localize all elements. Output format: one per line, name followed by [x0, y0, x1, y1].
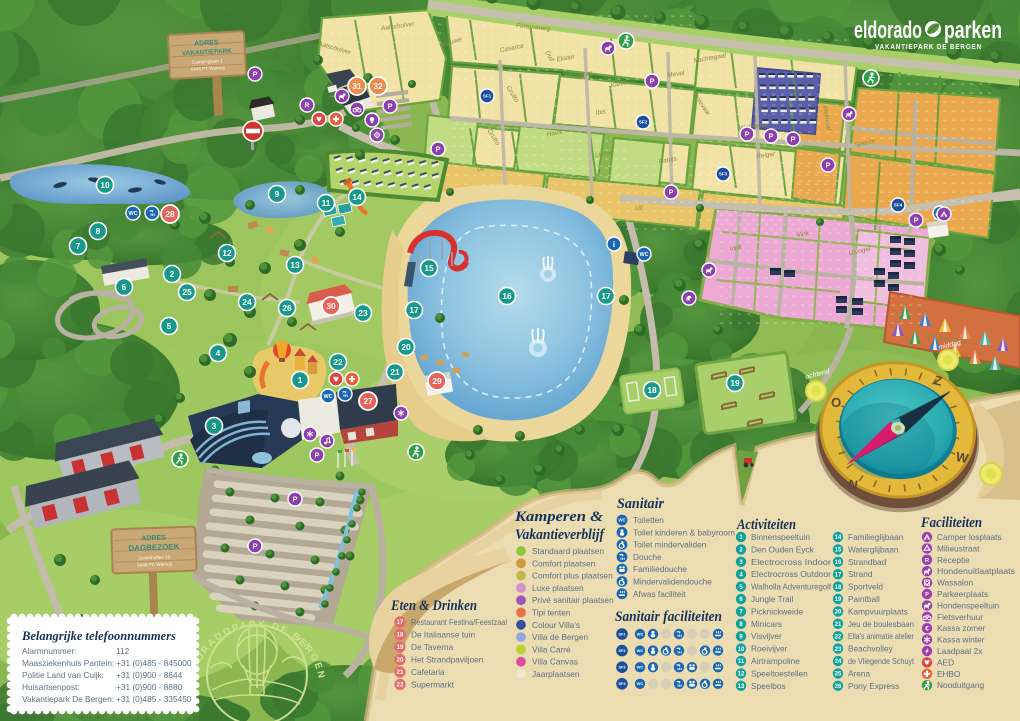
svg-text:24: 24: [835, 659, 842, 665]
svg-text:Toiletten: Toiletten: [633, 515, 664, 525]
svg-text:Huisartsenpost:: Huisartsenpost:: [22, 682, 80, 692]
svg-text:Kassa winter: Kassa winter: [937, 635, 985, 645]
svg-text:Afwas faciliteit: Afwas faciliteit: [633, 589, 686, 599]
svg-text:26: 26: [282, 303, 292, 313]
svg-text:Vakantiepark De Bergen:: Vakantiepark De Bergen:: [22, 694, 114, 704]
svg-text:SF1: SF1: [619, 632, 626, 636]
svg-text:eldorado: eldorado: [854, 17, 922, 44]
svg-text:Arena: Arena: [848, 668, 871, 678]
svg-text:11: 11: [738, 659, 745, 665]
svg-text:12: 12: [738, 672, 745, 678]
svg-text:8: 8: [96, 226, 101, 236]
svg-text:17: 17: [409, 305, 419, 315]
svg-text:P: P: [387, 102, 392, 111]
svg-text:DAGBEZOEK: DAGBEZOEK: [128, 542, 180, 553]
svg-text:18: 18: [835, 585, 842, 591]
svg-text:Privé sanitair plaatsen: Privé sanitair plaatsen: [532, 595, 614, 605]
svg-text:Comfort plus plaatsen: Comfort plus plaatsen: [532, 571, 613, 581]
svg-text:Electrocross Outdoor: Electrocross Outdoor: [751, 569, 831, 579]
svg-text:Toilet kinderen & babyroom: Toilet kinderen & babyroom: [633, 527, 735, 537]
svg-text:P: P: [744, 130, 749, 139]
svg-text:VAKANTIEPARK DE BERGEN: VAKANTIEPARK DE BERGEN: [875, 42, 982, 51]
svg-text:Parkeerplaats: Parkeerplaats: [937, 589, 988, 599]
svg-text:Milieustraat: Milieustraat: [937, 543, 980, 553]
svg-text:Colour Villa's: Colour Villa's: [532, 620, 580, 630]
svg-text:SF2: SF2: [639, 120, 648, 125]
svg-text:SF4: SF4: [894, 203, 903, 208]
svg-text:19: 19: [397, 644, 404, 651]
svg-text:Maasziekenhuis Pantein:: Maasziekenhuis Pantein:: [22, 658, 114, 668]
svg-text:SF1: SF1: [483, 94, 492, 99]
svg-text:€: €: [925, 626, 929, 633]
svg-text:Hondenspeeltuin: Hondenspeeltuin: [937, 600, 1000, 610]
svg-text:Visvijver: Visvijver: [751, 631, 782, 641]
svg-text:WC: WC: [129, 211, 138, 217]
svg-text:10: 10: [738, 647, 745, 653]
svg-text:Walholla Adventuregolf: Walholla Adventuregolf: [751, 582, 832, 592]
svg-text:WC: WC: [637, 631, 644, 636]
svg-text:de Vliegende Schuyt: de Vliegende Schuyt: [848, 656, 915, 666]
svg-text:16: 16: [835, 560, 842, 566]
svg-text:Uil: Uil: [635, 205, 644, 213]
svg-text:19: 19: [730, 378, 740, 388]
svg-text:P: P: [790, 135, 795, 144]
svg-text:Kassa zomer: Kassa zomer: [937, 623, 986, 633]
svg-text:16: 16: [502, 291, 512, 301]
svg-text:Beachvolley: Beachvolley: [848, 644, 894, 654]
svg-text:P: P: [668, 188, 673, 197]
svg-text:P: P: [435, 145, 440, 154]
svg-text:Den Ouden Eyck: Den Ouden Eyck: [751, 544, 815, 554]
svg-text:P: P: [649, 77, 654, 86]
svg-text:22: 22: [835, 634, 842, 640]
svg-text:Luxe plaatsen: Luxe plaatsen: [532, 583, 584, 593]
svg-text:17: 17: [601, 291, 611, 301]
svg-text:SF4: SF4: [619, 682, 627, 686]
svg-text:15: 15: [835, 548, 842, 554]
svg-text:SF3: SF3: [719, 172, 728, 177]
svg-text:12: 12: [222, 248, 232, 258]
svg-text:22: 22: [333, 357, 343, 367]
svg-text:Kamperen &: Kamperen &: [514, 509, 603, 525]
svg-text:27: 27: [363, 396, 373, 406]
svg-text:13: 13: [290, 260, 300, 270]
svg-text:25: 25: [835, 672, 842, 678]
svg-text:AED: AED: [937, 657, 954, 667]
svg-text:31: 31: [352, 81, 362, 91]
svg-text:Fietsverhuur: Fietsverhuur: [937, 612, 983, 622]
svg-text:Speeltoestellen: Speeltoestellen: [751, 668, 808, 678]
svg-text:Pony Express: Pony Express: [848, 681, 899, 691]
svg-text:Jeu de boulesbaan: Jeu de boulesbaan: [848, 619, 914, 629]
svg-text:6: 6: [122, 282, 127, 292]
svg-text:Villa Carré: Villa Carré: [532, 644, 571, 654]
svg-text:WC: WC: [637, 681, 644, 686]
svg-text:P: P: [768, 132, 773, 141]
svg-text:Camper losplaats: Camper losplaats: [937, 532, 1002, 542]
svg-text:10: 10: [100, 180, 110, 190]
svg-text:R: R: [925, 558, 929, 564]
svg-text:P: P: [252, 542, 257, 551]
svg-text:30: 30: [326, 301, 336, 311]
svg-text:Standaard plaatsen: Standaard plaatsen: [532, 546, 604, 556]
svg-text:Binnenspeeltuin: Binnenspeeltuin: [751, 532, 810, 542]
svg-text:17: 17: [397, 619, 404, 626]
svg-text:WC: WC: [324, 394, 333, 400]
svg-text:Eten & Drinken: Eten & Drinken: [390, 598, 477, 614]
svg-text:Familieglijbaan: Familieglijbaan: [848, 532, 904, 542]
svg-text:parken: parken: [944, 17, 1002, 44]
svg-text:23: 23: [835, 647, 842, 653]
svg-text:Hondenuitlaatplaats: Hondenuitlaatplaats: [937, 566, 1015, 576]
svg-text:9: 9: [275, 189, 280, 199]
svg-text:Wassalon: Wassalon: [937, 578, 974, 588]
svg-text:Waterglijbaan: Waterglijbaan: [848, 544, 899, 554]
svg-text:Tipi tenten: Tipi tenten: [532, 608, 571, 618]
svg-text:De Taverna: De Taverna: [411, 642, 454, 652]
svg-text:P: P: [252, 70, 257, 79]
svg-text:P: P: [925, 592, 929, 598]
svg-text:+31 (0)485 - 845000: +31 (0)485 - 845000: [116, 658, 192, 668]
svg-text:Cafetaria: Cafetaria: [411, 667, 445, 677]
svg-text:21: 21: [397, 669, 404, 676]
svg-text:1: 1: [298, 375, 303, 385]
svg-text:Jungle Trail: Jungle Trail: [751, 594, 794, 604]
svg-text:17: 17: [835, 572, 842, 578]
svg-text:De Italiaanse tuin: De Italiaanse tuin: [411, 630, 475, 640]
svg-text:Belangrijke telefoonnummers: Belangrijke telefoonnummers: [21, 629, 176, 643]
svg-text:Speelbos: Speelbos: [751, 681, 786, 691]
svg-text:P: P: [913, 216, 918, 225]
svg-text:Politie Land van Cuijk:: Politie Land van Cuijk:: [22, 670, 104, 680]
svg-text:+31 (0)485 - 335450: +31 (0)485 - 335450: [116, 694, 192, 704]
svg-text:SF3: SF3: [619, 666, 626, 670]
svg-text:Douche: Douche: [633, 552, 662, 562]
svg-text:7: 7: [76, 241, 81, 251]
svg-text:24: 24: [242, 297, 252, 307]
svg-text:29: 29: [432, 376, 442, 386]
svg-text:15: 15: [424, 263, 434, 273]
svg-text:Receptie: Receptie: [937, 555, 970, 565]
svg-text:EHBO: EHBO: [937, 669, 961, 679]
svg-text:+31 (0)900 - 8880: +31 (0)900 - 8880: [116, 682, 183, 692]
svg-text:R: R: [304, 103, 309, 110]
svg-text:20: 20: [835, 610, 842, 616]
svg-text:22: 22: [397, 682, 404, 689]
svg-text:+31 (0)900 - 8844: +31 (0)900 - 8844: [116, 670, 183, 680]
svg-text:26: 26: [835, 684, 842, 690]
svg-text:Comfort plaatsen: Comfort plaatsen: [532, 558, 596, 568]
svg-text:13: 13: [738, 684, 745, 690]
svg-text:Villa de Bergen: Villa de Bergen: [532, 632, 589, 642]
svg-text:Alarmnummer:: Alarmnummer:: [22, 646, 76, 656]
svg-text:Strand: Strand: [848, 569, 873, 579]
svg-text:Roeivijver: Roeivijver: [751, 644, 788, 654]
svg-text:Strandbad: Strandbad: [848, 557, 887, 567]
svg-text:Electrocross Indoor: Electrocross Indoor: [751, 557, 831, 567]
svg-text:Mindervalidendouche: Mindervalidendouche: [633, 577, 712, 587]
svg-text:14: 14: [352, 192, 362, 202]
svg-text:P: P: [825, 161, 830, 170]
svg-text:Sportveld: Sportveld: [848, 582, 883, 592]
svg-text:Sanitair faciliteiten: Sanitair faciliteiten: [615, 609, 722, 625]
svg-text:11: 11: [322, 198, 331, 208]
svg-text:WC: WC: [640, 252, 649, 258]
svg-text:Familiedouche: Familiedouche: [633, 564, 687, 574]
svg-text:Airtrampoline: Airtrampoline: [751, 656, 800, 666]
svg-text:2: 2: [170, 269, 175, 279]
svg-text:20: 20: [397, 657, 404, 664]
svg-text:Vakantieverblijf: Vakantieverblijf: [515, 527, 606, 543]
svg-text:Jaarplaatsen: Jaarplaatsen: [532, 669, 580, 679]
svg-text:Laadpaal 2x: Laadpaal 2x: [937, 646, 983, 656]
svg-text:Villa Canvas: Villa Canvas: [532, 657, 578, 667]
svg-text:WC: WC: [619, 518, 626, 523]
svg-text:32: 32: [373, 81, 383, 91]
svg-text:Supermarkt: Supermarkt: [411, 680, 455, 690]
svg-text:P: P: [292, 495, 297, 504]
svg-text:21: 21: [835, 622, 842, 628]
svg-text:Activiteiten: Activiteiten: [736, 517, 796, 533]
svg-text:4: 4: [216, 348, 221, 358]
svg-text:112: 112: [116, 646, 130, 656]
svg-text:23: 23: [358, 308, 368, 318]
svg-text:Het Strandpaviljoen: Het Strandpaviljoen: [411, 655, 484, 665]
svg-text:Minicars: Minicars: [751, 619, 782, 629]
svg-text:SF2: SF2: [619, 649, 626, 653]
svg-text:21: 21: [390, 367, 400, 377]
svg-text:3: 3: [212, 421, 217, 431]
svg-text:Paintball: Paintball: [848, 594, 880, 604]
svg-text:18: 18: [397, 632, 404, 639]
svg-text:Faciliteiten: Faciliteiten: [920, 515, 982, 531]
svg-text:Ella's animatie atelier: Ella's animatie atelier: [848, 631, 914, 641]
svg-text:20: 20: [401, 342, 411, 352]
svg-text:Ibis: Ibis: [595, 108, 607, 116]
svg-text:Restaurant Festina/Feestzaal: Restaurant Festina/Feestzaal: [411, 617, 507, 627]
svg-text:ADRES: ADRES: [194, 39, 219, 47]
svg-text:25: 25: [182, 287, 192, 297]
svg-text:14: 14: [835, 535, 842, 541]
svg-text:ADRES: ADRES: [141, 535, 166, 543]
svg-text:Nooduitgang: Nooduitgang: [937, 680, 984, 690]
svg-text:WC: WC: [637, 648, 644, 653]
svg-text:19: 19: [835, 597, 842, 603]
svg-text:Toilet mindervaliden: Toilet mindervaliden: [633, 540, 707, 550]
svg-text:WC: WC: [637, 665, 644, 670]
svg-text:Uil: Uil: [477, 166, 486, 174]
svg-text:Kampvuurplaats: Kampvuurplaats: [848, 606, 908, 616]
svg-text:P: P: [314, 451, 319, 460]
svg-text:Sanitair: Sanitair: [617, 496, 664, 512]
svg-text:5: 5: [167, 321, 172, 331]
svg-text:18: 18: [647, 385, 657, 395]
svg-text:Picknickweide: Picknickweide: [751, 606, 803, 616]
svg-text:i: i: [613, 240, 615, 249]
svg-text:28: 28: [165, 209, 175, 219]
